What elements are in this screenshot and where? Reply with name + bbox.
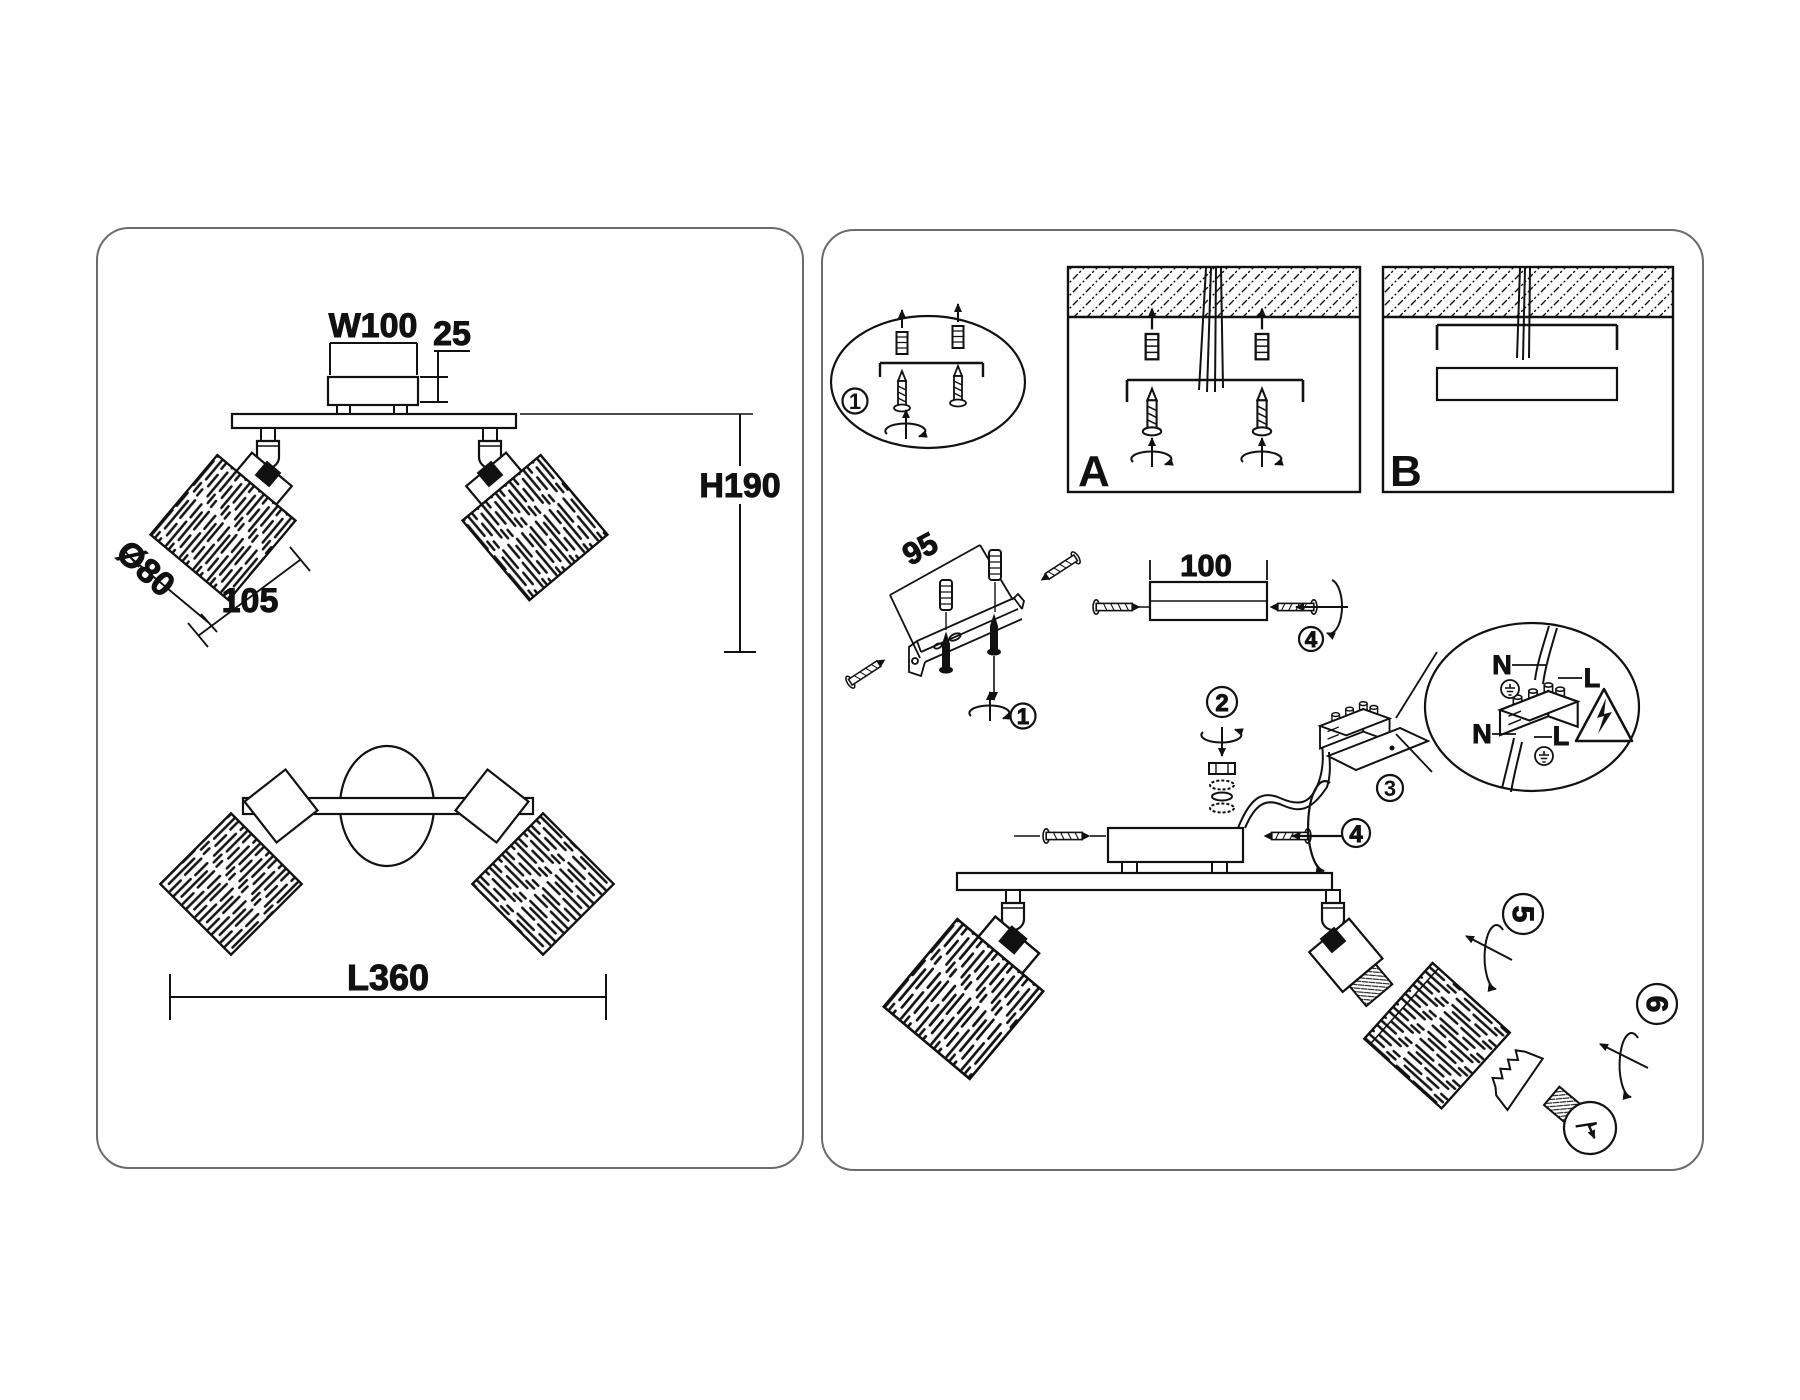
canopy-foot — [337, 405, 350, 414]
spec-panel: W100 25 — [97, 228, 803, 1168]
dim-fixture-length-label: L360 — [347, 957, 429, 998]
mount-variant-a: A — [1068, 267, 1360, 496]
wiring-live-bottom-label: L — [1553, 721, 1570, 751]
stem-neck — [483, 428, 497, 441]
step5-label: 5 — [1506, 906, 1539, 923]
washer-icon — [1212, 793, 1232, 801]
step1-label: 1 — [849, 389, 861, 414]
step4-label: 4 — [1305, 627, 1318, 652]
wiring-neutral-top-label: N — [1492, 650, 1512, 680]
dim-shade-length-label: 105 — [222, 582, 279, 620]
mount-bar — [957, 873, 1332, 890]
wall-plug-icon — [940, 580, 952, 610]
diagram: W100 25 — [0, 0, 1800, 1400]
stem-neck — [1326, 890, 1340, 903]
variant-a-label: A — [1078, 447, 1110, 496]
step1b-label: 1 — [1017, 704, 1029, 729]
canopy-foot — [1212, 862, 1227, 873]
nut-icon — [1209, 763, 1235, 774]
ceiling-hatch — [1069, 268, 1359, 317]
mount-bar-icon — [1437, 368, 1617, 400]
washer-icon — [1210, 781, 1234, 790]
step3-label: 3 — [1384, 776, 1396, 801]
dim-canopy-height-label: 25 — [433, 315, 471, 353]
dim-fixture-height-label: H190 — [699, 467, 780, 505]
step6-label: 6 — [1640, 996, 1673, 1013]
install-panel: 1 A B — [822, 230, 1703, 1170]
instruction-sheet: W100 25 — [0, 0, 1800, 1400]
canopy-foot — [394, 405, 407, 414]
earth-symbol-icon — [1501, 680, 1519, 698]
canopy-foot — [1122, 862, 1137, 873]
wiring-neutral-bottom-label: N — [1472, 719, 1492, 749]
washer-icon — [1210, 804, 1234, 813]
stem-neck — [261, 428, 275, 441]
wiring-live-top-label: L — [1584, 663, 1601, 693]
variant-b-label: B — [1390, 447, 1422, 496]
spec-panel-border — [97, 228, 803, 1168]
dim-canopy-width-label: W100 — [329, 307, 418, 345]
step2-label: 2 — [1215, 690, 1228, 717]
canopy — [1108, 828, 1243, 862]
ceiling-hatch — [1384, 268, 1672, 317]
canopy-side — [328, 377, 418, 405]
dim-canopy100-label: 100 — [1180, 548, 1232, 583]
mount-bar-side — [232, 414, 516, 428]
step4b-label: 4 — [1349, 821, 1363, 848]
stem-neck — [1006, 890, 1020, 903]
wall-plug-icon — [989, 550, 1001, 580]
mount-variant-b: B — [1383, 267, 1673, 496]
earth-symbol-icon — [1535, 747, 1553, 765]
